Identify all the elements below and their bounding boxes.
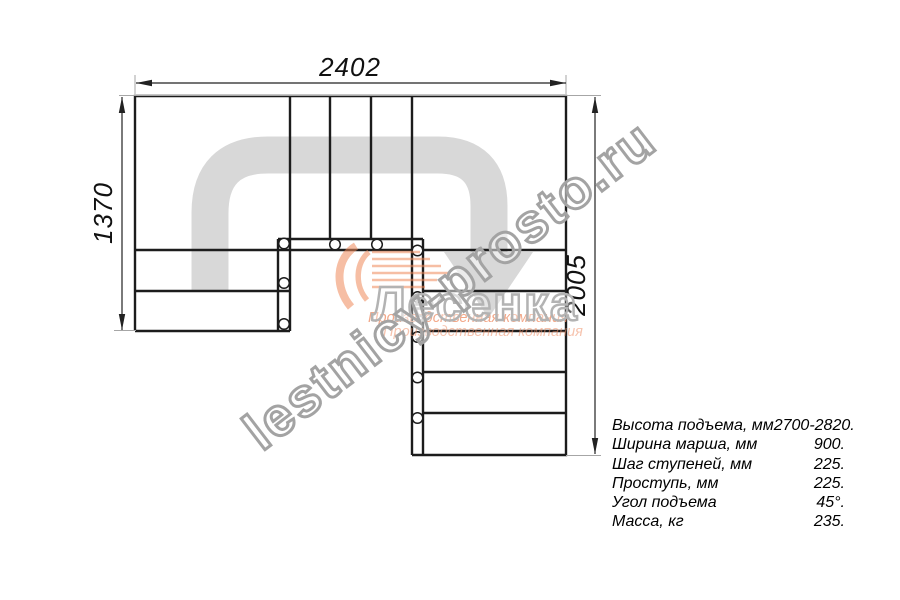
spec-label: Ширина марша, мм — [612, 435, 757, 454]
spec-value: 2700-2820. — [774, 416, 855, 435]
spec-row: Ширина марша, мм 900. — [612, 435, 845, 454]
baluster — [412, 245, 423, 256]
baluster — [279, 278, 290, 289]
arrowhead — [550, 80, 566, 86]
arrowhead — [136, 80, 152, 86]
spec-label: Масса, кг — [612, 512, 684, 531]
arrowhead — [592, 438, 598, 454]
spec-row: Шаг ступеней, мм 225. — [612, 455, 845, 474]
spec-value: 225. — [814, 474, 845, 493]
baluster — [412, 413, 423, 424]
dim-text-top: 2402 — [318, 52, 381, 82]
specs-table: Высота подъема, мм 2700-2820. Ширина мар… — [612, 416, 845, 532]
baluster — [412, 372, 423, 383]
arrowhead — [119, 97, 125, 113]
baluster — [372, 239, 383, 250]
spec-row: Масса, кг 235. — [612, 512, 845, 531]
baluster — [279, 238, 290, 249]
spec-label: Высота подъема, мм — [612, 416, 774, 435]
arrowhead — [119, 314, 125, 330]
dim-text-left: 1370 — [88, 182, 118, 244]
spec-row: Угол подъема 45°. — [612, 493, 845, 512]
spec-label: Угол подъема — [612, 493, 717, 512]
spec-value: 900. — [814, 435, 845, 454]
spec-row: Высота подъема, мм 2700-2820. — [612, 416, 845, 435]
spec-value: 235. — [814, 512, 845, 531]
baluster — [330, 239, 341, 250]
arrowhead — [592, 97, 598, 113]
baluster — [279, 319, 290, 330]
stair-drawing-page: 2402 1370 2005 Производственная компания… — [0, 0, 900, 600]
spec-row: Проступь, мм 225. — [612, 474, 845, 493]
spec-value: 225. — [814, 455, 845, 474]
spec-value: 45°. — [816, 493, 845, 512]
flame-icon — [358, 252, 369, 300]
spec-label: Проступь, мм — [612, 474, 718, 493]
spec-label: Шаг ступеней, мм — [612, 455, 752, 474]
flame-icon — [340, 246, 356, 307]
